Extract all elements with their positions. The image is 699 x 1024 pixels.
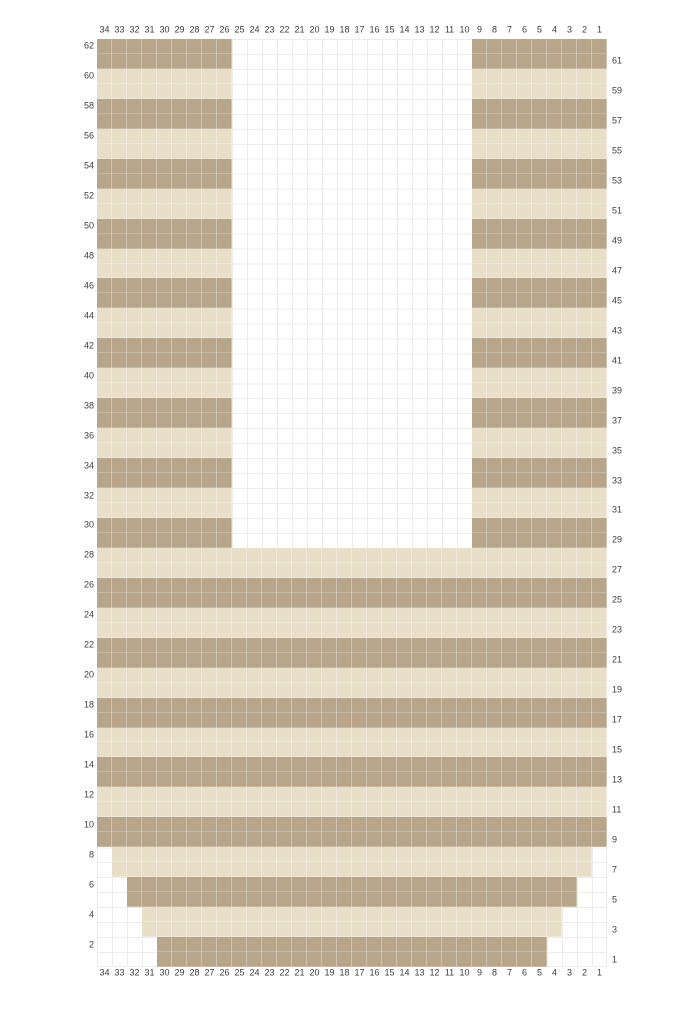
chart-row-37-dark-span (472, 413, 607, 428)
col-label-bottom-1: 1 (597, 969, 602, 978)
col-label-top-29: 29 (174, 26, 184, 35)
chart-row-19-light-span (97, 683, 607, 698)
row-label-right-37: 37 (612, 416, 622, 425)
chart-row-52-light-span (97, 189, 232, 204)
chart-row-49-dark-span (97, 234, 232, 249)
chart-row-60-light-span (97, 69, 232, 84)
col-label-bottom-18: 18 (339, 969, 349, 978)
col-label-top-7: 7 (507, 26, 512, 35)
chart-row-59-light-span (472, 84, 607, 99)
chart-row-27-light-span (97, 563, 607, 578)
row-label-left-28: 28 (64, 551, 94, 560)
chart-row-14-dark-span (97, 757, 607, 772)
col-label-bottom-25: 25 (234, 969, 244, 978)
chart-row-9-dark-span (97, 832, 607, 847)
row-label-left-26: 26 (64, 581, 94, 590)
chart-row-48-light-span (472, 249, 607, 264)
row-label-right-25: 25 (612, 596, 622, 605)
chart-row-60-light-span (472, 69, 607, 84)
chart-row-16-light-span (97, 728, 607, 743)
col-label-bottom-4: 4 (552, 969, 557, 978)
chart-row-22-dark-span (97, 638, 607, 653)
row-label-right-27: 27 (612, 566, 622, 575)
col-label-top-34: 34 (99, 26, 109, 35)
row-label-left-8: 8 (64, 850, 94, 859)
col-label-bottom-26: 26 (219, 969, 229, 978)
col-label-bottom-30: 30 (159, 969, 169, 978)
chart-row-52-light-span (472, 189, 607, 204)
chart-row-50-dark-span (472, 219, 607, 234)
col-label-bottom-16: 16 (369, 969, 379, 978)
col-label-top-21: 21 (294, 26, 304, 35)
chart-row-38-dark-span (97, 398, 232, 413)
row-label-right-9: 9 (612, 835, 617, 844)
chart-row-49-dark-span (472, 234, 607, 249)
chart-row-61-dark-span (472, 54, 607, 69)
row-label-left-36: 36 (64, 431, 94, 440)
chart-row-48-light-span (97, 249, 232, 264)
chart-row-35-light-span (472, 443, 607, 458)
col-label-top-23: 23 (264, 26, 274, 35)
row-label-left-16: 16 (64, 731, 94, 740)
col-label-top-27: 27 (204, 26, 214, 35)
col-label-bottom-5: 5 (537, 969, 542, 978)
chart-row-41-dark-span (97, 353, 232, 368)
chart-row-36-light-span (97, 428, 232, 443)
chart-row-45-dark-span (97, 293, 232, 308)
chart-row-50-dark-span (97, 219, 232, 234)
chart-row-58-dark-span (472, 99, 607, 114)
row-label-left-30: 30 (64, 521, 94, 530)
col-label-top-32: 32 (129, 26, 139, 35)
row-label-right-11: 11 (612, 805, 621, 814)
chart-row-34-dark-span (472, 458, 607, 473)
chart-row-13-dark-span (97, 772, 607, 787)
chart-row-46-dark-span (97, 278, 232, 293)
chart-row-4-light-span (142, 907, 562, 922)
row-label-left-52: 52 (64, 192, 94, 201)
col-label-bottom-6: 6 (522, 969, 527, 978)
col-label-top-17: 17 (354, 26, 364, 35)
chart-row-15-light-span (97, 742, 607, 757)
row-label-left-48: 48 (64, 252, 94, 261)
col-label-top-24: 24 (249, 26, 259, 35)
chart-row-62-dark-span (472, 39, 607, 54)
chart-row-61-dark-span (97, 54, 232, 69)
col-label-bottom-24: 24 (249, 969, 259, 978)
chart-row-6-dark-span (127, 877, 577, 892)
row-label-right-5: 5 (612, 895, 617, 904)
row-label-right-21: 21 (612, 656, 622, 665)
col-label-top-9: 9 (477, 26, 482, 35)
col-label-top-6: 6 (522, 26, 527, 35)
chart-row-2-dark-span (157, 937, 547, 952)
chart-row-46-dark-span (472, 278, 607, 293)
chart-row-62-dark-span (97, 39, 232, 54)
chart-row-42-dark-span (472, 338, 607, 353)
col-label-top-15: 15 (384, 26, 394, 35)
row-label-left-56: 56 (64, 132, 94, 141)
row-label-left-60: 60 (64, 72, 94, 81)
row-label-right-31: 31 (612, 506, 622, 515)
row-label-left-12: 12 (64, 790, 94, 799)
col-label-bottom-23: 23 (264, 969, 274, 978)
chart-row-56-light-span (97, 129, 232, 144)
col-label-bottom-7: 7 (507, 969, 512, 978)
col-label-top-14: 14 (399, 26, 409, 35)
row-label-right-17: 17 (612, 716, 622, 725)
row-label-left-50: 50 (64, 222, 94, 231)
chart-row-34-dark-span (97, 458, 232, 473)
col-label-bottom-14: 14 (399, 969, 409, 978)
col-label-top-33: 33 (114, 26, 124, 35)
row-label-right-1: 1 (612, 955, 617, 964)
chart-row-30-dark-span (472, 518, 607, 533)
chart-row-8-light-span (112, 847, 592, 862)
chart-row-28-light-span (97, 548, 607, 563)
chart-row-23-light-span (97, 623, 607, 638)
col-label-bottom-11: 11 (445, 969, 454, 978)
col-label-bottom-2: 2 (582, 969, 587, 978)
row-label-right-7: 7 (612, 865, 617, 874)
col-label-bottom-10: 10 (459, 969, 469, 978)
col-label-bottom-31: 31 (144, 969, 154, 978)
chart-row-25-dark-span (97, 593, 607, 608)
chart-row-21-dark-span (97, 653, 607, 668)
row-label-left-42: 42 (64, 341, 94, 350)
chart-row-24-light-span (97, 608, 607, 623)
row-label-left-58: 58 (64, 102, 94, 111)
row-label-left-4: 4 (64, 910, 94, 919)
row-label-left-46: 46 (64, 281, 94, 290)
knitting-chart-page: 3433323130292827262524232221201918171615… (0, 0, 699, 1024)
chart-row-53-dark-span (97, 174, 232, 189)
col-label-top-3: 3 (567, 26, 572, 35)
row-label-left-24: 24 (64, 611, 94, 620)
chart-row-39-light-span (97, 383, 232, 398)
col-label-top-16: 16 (369, 26, 379, 35)
col-label-bottom-34: 34 (99, 969, 109, 978)
col-label-bottom-8: 8 (492, 969, 497, 978)
col-label-top-13: 13 (414, 26, 424, 35)
chart-row-55-light-span (97, 144, 232, 159)
col-label-bottom-9: 9 (477, 969, 482, 978)
row-label-right-19: 19 (612, 686, 622, 695)
row-label-right-47: 47 (612, 267, 622, 276)
row-label-left-34: 34 (64, 461, 94, 470)
chart-row-37-dark-span (97, 413, 232, 428)
col-label-top-12: 12 (429, 26, 439, 35)
chart-row-57-dark-span (472, 114, 607, 129)
row-label-left-44: 44 (64, 311, 94, 320)
col-label-bottom-28: 28 (189, 969, 199, 978)
chart-row-31-light-span (97, 503, 232, 518)
chart-row-12-light-span (97, 787, 607, 802)
chart-row-31-light-span (472, 503, 607, 518)
chart-row-47-light-span (97, 264, 232, 279)
chart-row-44-light-span (472, 308, 607, 323)
col-label-bottom-33: 33 (114, 969, 124, 978)
col-label-bottom-3: 3 (567, 969, 572, 978)
chart-row-41-dark-span (472, 353, 607, 368)
chart-row-51-light-span (472, 204, 607, 219)
chart-row-43-light-span (97, 323, 232, 338)
col-label-top-2: 2 (582, 26, 587, 35)
chart-row-10-dark-span (97, 817, 607, 832)
col-label-bottom-13: 13 (414, 969, 424, 978)
chart-row-54-dark-span (97, 159, 232, 174)
row-label-right-43: 43 (612, 326, 622, 335)
row-label-right-3: 3 (612, 925, 617, 934)
chart-row-47-light-span (472, 264, 607, 279)
row-label-right-61: 61 (612, 57, 622, 66)
chart-row-38-dark-span (472, 398, 607, 413)
row-label-right-13: 13 (612, 775, 622, 784)
chart-row-53-dark-span (472, 174, 607, 189)
chart-row-33-dark-span (472, 473, 607, 488)
chart-row-45-dark-span (472, 293, 607, 308)
chart-row-55-light-span (472, 144, 607, 159)
col-label-bottom-17: 17 (354, 969, 364, 978)
col-label-top-25: 25 (234, 26, 244, 35)
chart-row-40-light-span (472, 368, 607, 383)
col-label-top-20: 20 (309, 26, 319, 35)
row-label-left-40: 40 (64, 371, 94, 380)
col-label-bottom-29: 29 (174, 969, 184, 978)
col-label-top-4: 4 (552, 26, 557, 35)
row-label-left-62: 62 (64, 42, 94, 51)
row-label-left-22: 22 (64, 641, 94, 650)
chart-row-30-dark-span (97, 518, 232, 533)
col-label-top-1: 1 (597, 26, 602, 35)
col-label-bottom-32: 32 (129, 969, 139, 978)
chart-row-32-light-span (472, 488, 607, 503)
row-label-right-29: 29 (612, 536, 622, 545)
row-label-right-23: 23 (612, 626, 622, 635)
col-label-top-22: 22 (279, 26, 289, 35)
col-label-top-11: 11 (445, 26, 454, 35)
row-label-right-59: 59 (612, 87, 622, 96)
col-label-top-28: 28 (189, 26, 199, 35)
row-label-left-54: 54 (64, 162, 94, 171)
row-label-left-6: 6 (64, 880, 94, 889)
chart-row-11-light-span (97, 802, 607, 817)
chart-row-43-light-span (472, 323, 607, 338)
row-label-left-14: 14 (64, 760, 94, 769)
chart-row-36-light-span (472, 428, 607, 443)
col-label-top-10: 10 (459, 26, 469, 35)
col-label-top-30: 30 (159, 26, 169, 35)
col-label-bottom-22: 22 (279, 969, 289, 978)
chart-row-17-dark-span (97, 713, 607, 728)
row-label-right-35: 35 (612, 446, 622, 455)
col-label-bottom-27: 27 (204, 969, 214, 978)
chart-row-54-dark-span (472, 159, 607, 174)
col-label-top-8: 8 (492, 26, 497, 35)
chart-row-33-dark-span (97, 473, 232, 488)
row-label-left-32: 32 (64, 491, 94, 500)
chart-row-40-light-span (97, 368, 232, 383)
row-label-left-18: 18 (64, 701, 94, 710)
chart-row-7-light-span (112, 862, 592, 877)
chart-row-1-dark-span (157, 952, 547, 967)
row-label-right-49: 49 (612, 237, 622, 246)
row-label-left-10: 10 (64, 820, 94, 829)
chart-row-29-dark-span (97, 533, 232, 548)
row-label-right-45: 45 (612, 296, 622, 305)
chart-row-44-light-span (97, 308, 232, 323)
row-label-right-51: 51 (612, 207, 622, 216)
chart-row-32-light-span (97, 488, 232, 503)
chart-row-29-dark-span (472, 533, 607, 548)
row-label-right-55: 55 (612, 147, 622, 156)
row-label-left-20: 20 (64, 671, 94, 680)
chart-row-39-light-span (472, 383, 607, 398)
chart-row-35-light-span (97, 443, 232, 458)
row-label-right-39: 39 (612, 386, 622, 395)
chart-row-58-dark-span (97, 99, 232, 114)
row-label-right-53: 53 (612, 177, 622, 186)
chart-row-42-dark-span (97, 338, 232, 353)
row-label-right-57: 57 (612, 117, 622, 126)
col-label-bottom-19: 19 (324, 969, 334, 978)
col-label-top-18: 18 (339, 26, 349, 35)
chart-row-59-light-span (97, 84, 232, 99)
col-label-bottom-20: 20 (309, 969, 319, 978)
chart-row-26-dark-span (97, 578, 607, 593)
col-label-bottom-21: 21 (294, 969, 304, 978)
row-label-right-33: 33 (612, 476, 622, 485)
col-label-top-19: 19 (324, 26, 334, 35)
col-label-top-26: 26 (219, 26, 229, 35)
col-label-top-5: 5 (537, 26, 542, 35)
chart-row-51-light-span (97, 204, 232, 219)
chart-row-57-dark-span (97, 114, 232, 129)
row-label-left-38: 38 (64, 401, 94, 410)
col-label-top-31: 31 (144, 26, 154, 35)
chart-row-56-light-span (472, 129, 607, 144)
row-label-right-15: 15 (612, 745, 622, 754)
chart-row-18-dark-span (97, 698, 607, 713)
row-label-right-41: 41 (612, 356, 622, 365)
row-label-left-2: 2 (64, 940, 94, 949)
col-label-bottom-12: 12 (429, 969, 439, 978)
col-label-bottom-15: 15 (384, 969, 394, 978)
chart-row-3-light-span (142, 922, 562, 937)
chart-row-20-light-span (97, 668, 607, 683)
knitting-chart-grid (97, 39, 607, 967)
chart-row-5-dark-span (127, 892, 577, 907)
